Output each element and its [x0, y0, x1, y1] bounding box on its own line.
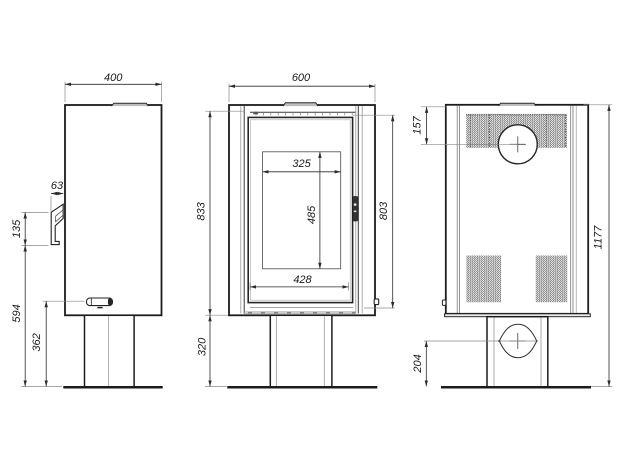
svg-text:428: 428	[293, 274, 312, 286]
svg-text:320: 320	[196, 337, 208, 356]
svg-text:485: 485	[306, 205, 318, 224]
svg-text:157: 157	[411, 115, 423, 134]
svg-text:833: 833	[196, 201, 208, 220]
svg-text:594: 594	[11, 304, 23, 322]
svg-text:1177: 1177	[592, 225, 604, 250]
svg-text:600: 600	[292, 72, 311, 84]
svg-text:63: 63	[51, 180, 64, 192]
svg-text:803: 803	[378, 201, 390, 220]
svg-text:362: 362	[31, 333, 43, 351]
svg-text:204: 204	[412, 354, 424, 373]
svg-text:325: 325	[292, 158, 311, 170]
svg-text:400: 400	[104, 72, 123, 84]
svg-text:135: 135	[11, 219, 23, 238]
